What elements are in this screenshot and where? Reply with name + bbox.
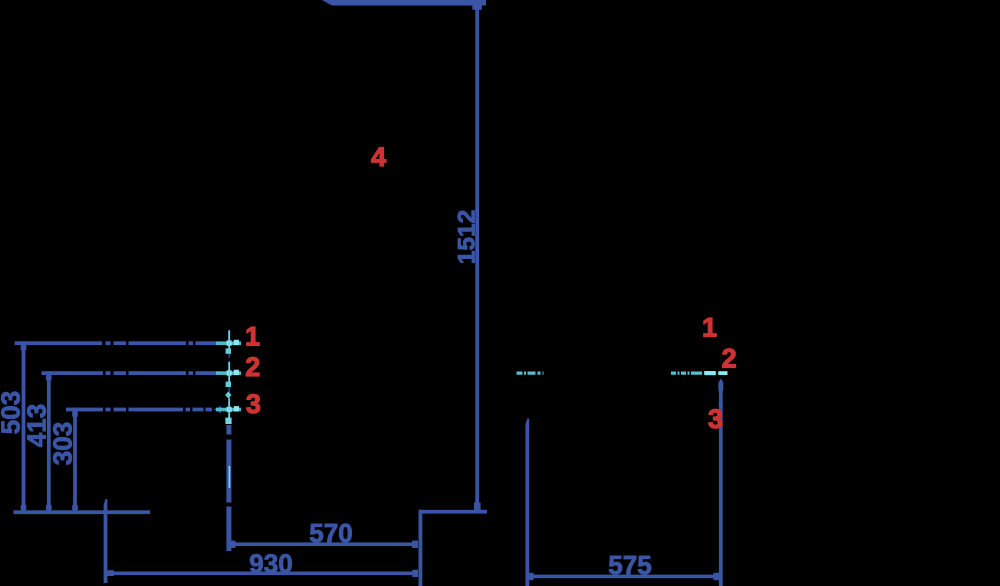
svg-text:575: 575 (608, 550, 651, 580)
svg-text:1512: 1512 (454, 210, 481, 265)
svg-text:1: 1 (245, 321, 260, 351)
svg-text:303: 303 (48, 422, 78, 465)
svg-text:3: 3 (708, 404, 723, 434)
svg-text:2: 2 (245, 352, 260, 382)
svg-text:930: 930 (249, 549, 292, 579)
svg-text:2: 2 (722, 344, 737, 374)
svg-text:3: 3 (246, 389, 261, 419)
svg-text:1: 1 (702, 313, 717, 343)
svg-text:570: 570 (309, 518, 352, 548)
svg-text:4: 4 (371, 142, 386, 172)
